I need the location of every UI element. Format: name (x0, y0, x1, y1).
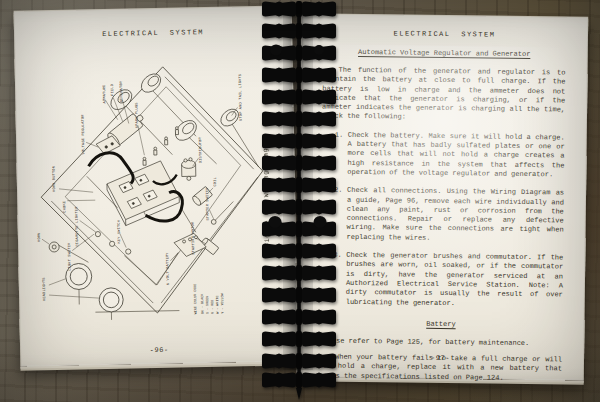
key-switch-label: KEY SWITCH (117, 220, 121, 244)
punch-hole (269, 216, 282, 228)
headlights-label: HEADLIGHTS (42, 277, 46, 301)
wire-code-entry: W - WHITE (215, 295, 219, 313)
spark-plugs-label: SPARK PLUGS (134, 102, 138, 128)
ignition-coil (191, 186, 213, 207)
battery-heading: Battery (319, 318, 562, 329)
instrument-panel (107, 161, 180, 226)
spiral-binding (256, 0, 342, 402)
generator-assembly (96, 110, 148, 154)
section-title: Automatic Voltage Regulator and Generato… (323, 48, 566, 59)
item-text: Check all connections. Using the Wiring … (346, 186, 564, 244)
horn-label: HORN (37, 233, 41, 243)
desk-surface: ELECTRICAL SYSTEM (0, 0, 600, 402)
punch-hole (314, 216, 327, 228)
wire-code-entry: G - GREEN (205, 296, 209, 314)
intro-paragraph: The function of the generator and regula… (322, 66, 566, 125)
armature-label: ARMATURE (102, 85, 106, 104)
wire-code-title: WIRE COLOR CODE (193, 284, 198, 315)
horn (49, 242, 59, 252)
item-text: Check the generator brushes and commutat… (346, 251, 564, 309)
wiring-diagram-figure: ARMATURE FIELD GENERATOR VOLTAGE REGULAT… (24, 45, 282, 342)
field-label: FIELD (110, 84, 114, 96)
battery-label: 6 VOLT BATTERY (165, 252, 170, 286)
list-item: 3. Check the generator brushes and commu… (333, 251, 564, 310)
binding-rod-tip (296, 388, 302, 400)
voltage-regulator-label: VOLTAGE REGULATOR (81, 114, 86, 155)
page-header: ELECTRICAL SYSTEM (15, 26, 291, 39)
starting-motor-label: STARTING MOTOR (191, 221, 196, 255)
wire-code-entry: R - RED (210, 300, 214, 314)
generator-label: GENERATOR (119, 80, 123, 102)
light-switch-label: LIGHT SWITCH (67, 243, 72, 271)
battery-paragraph-1: Please refer to Page 125, for battery ma… (319, 336, 562, 348)
distributor (181, 158, 195, 181)
stop-tail-lights-label: STOP AND TAIL LIGHTS (238, 74, 243, 121)
coil-label: COIL (213, 177, 217, 187)
horn-button-label: HORN BUTTON (52, 166, 56, 192)
list-item: 2. Check all connections. Using the Wiri… (333, 186, 564, 245)
item-text: Check the battery. Make sure it will hol… (347, 131, 565, 180)
wire-color-code: WIRE COLOR CODE BK - BLACK G - GREEN R -… (193, 283, 225, 314)
wire-code-entry: BK - BLACK (200, 293, 204, 314)
page-header: ELECTRICAL SYSTEM (302, 28, 587, 39)
punch-hole (314, 45, 324, 55)
list-item: 1. Check the battery. Make sure it will … (334, 130, 565, 179)
spark-plugs (142, 127, 179, 166)
punch-hole (270, 45, 282, 56)
cigarette-lighter-label: CIGARETTE LIGHTER (74, 206, 79, 247)
wire-code-entry: Y - YELLOW (220, 292, 224, 313)
starter-switch-label: STARTER SWITCH (205, 187, 210, 220)
distributor-label: DISTRIBUTOR (198, 137, 203, 164)
choke-label: CHOKE (62, 201, 66, 213)
